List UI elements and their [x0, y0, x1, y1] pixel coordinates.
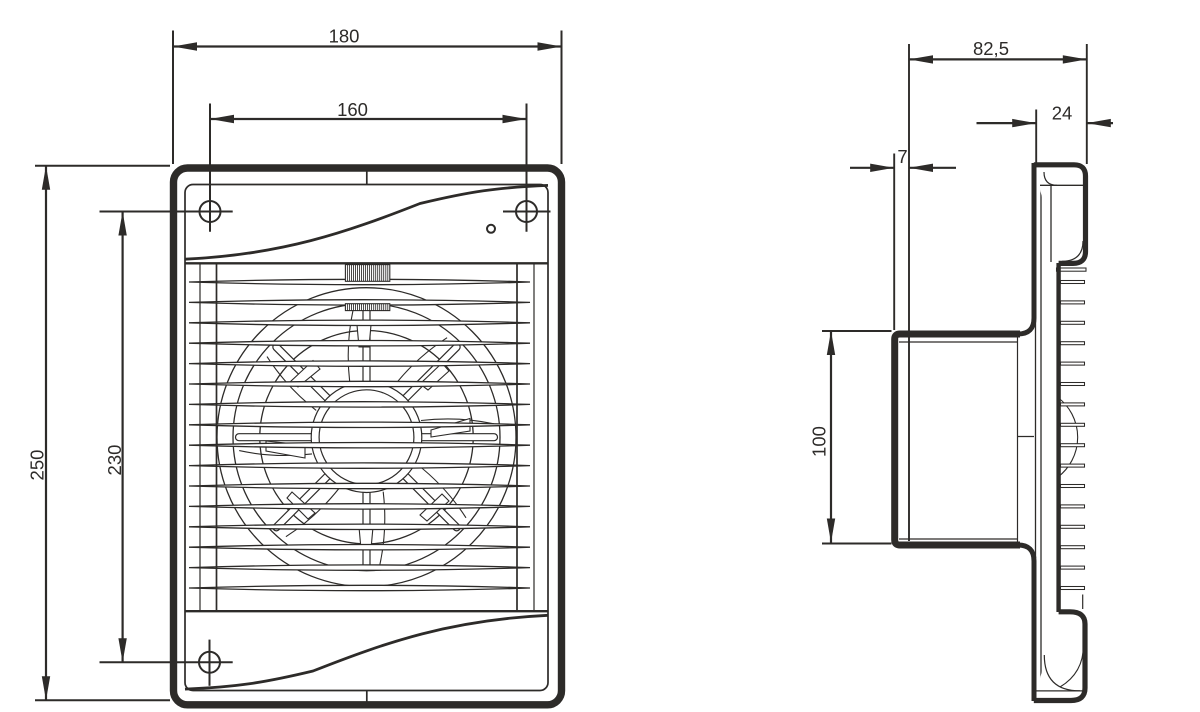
svg-text:82,5: 82,5	[973, 38, 1009, 59]
svg-text:100: 100	[809, 426, 830, 457]
svg-text:24: 24	[1052, 103, 1073, 124]
svg-text:7: 7	[897, 146, 907, 167]
svg-text:250: 250	[27, 450, 48, 481]
svg-text:160: 160	[337, 99, 368, 120]
svg-text:230: 230	[104, 445, 125, 476]
svg-text:180: 180	[329, 26, 360, 47]
